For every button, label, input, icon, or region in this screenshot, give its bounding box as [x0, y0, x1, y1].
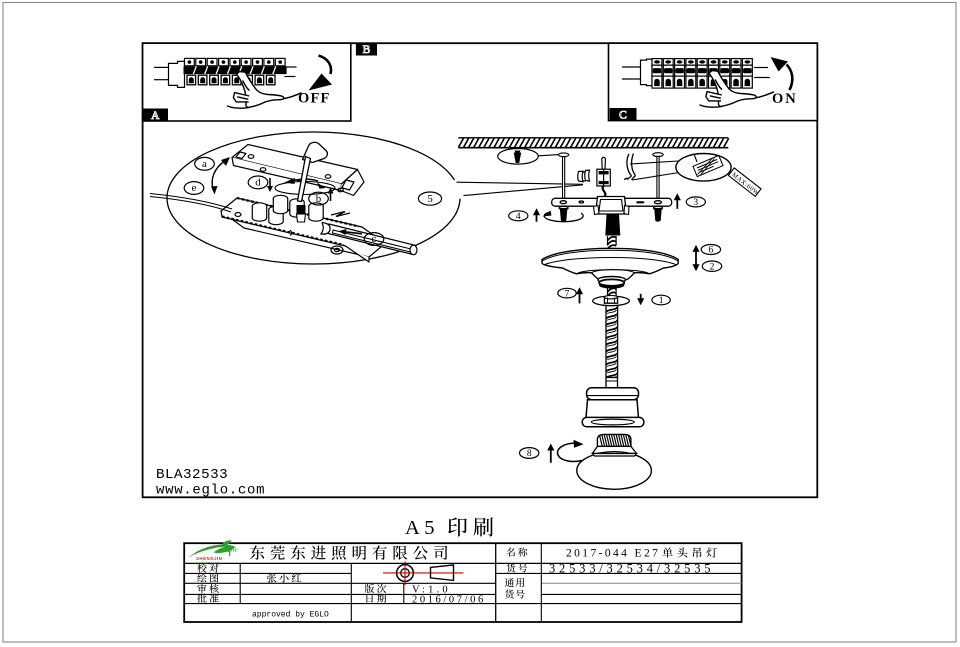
svg-text:8: 8 — [527, 449, 532, 459]
svg-text:b: b — [316, 193, 322, 205]
svg-text:2017-044 E27: 2017-044 E27 — [566, 548, 660, 560]
svg-text:2016/07/06: 2016/07/06 — [412, 595, 486, 606]
svg-text:a: a — [202, 158, 207, 170]
svg-text:approved by EGLO: approved by EGLO — [252, 611, 329, 620]
svg-text:5: 5 — [427, 193, 433, 205]
svg-text:d: d — [255, 177, 261, 189]
svg-text:C: C — [619, 109, 627, 121]
svg-text:A5: A5 — [405, 517, 439, 539]
svg-text:www.eglo.com: www.eglo.com — [156, 483, 265, 499]
svg-text:6: 6 — [709, 246, 714, 256]
svg-text:3: 3 — [693, 198, 698, 208]
svg-text:BLA32533: BLA32533 — [156, 467, 228, 483]
svg-text:c: c — [372, 233, 377, 245]
svg-text:1: 1 — [659, 296, 664, 306]
svg-text:ON: ON — [772, 91, 798, 107]
svg-text:7: 7 — [565, 289, 570, 299]
svg-text:2: 2 — [710, 262, 715, 272]
svg-text:4: 4 — [516, 212, 521, 222]
svg-text:e: e — [192, 182, 197, 194]
svg-text:OFF: OFF — [298, 91, 331, 107]
svg-text:A: A — [151, 110, 160, 122]
svg-text:DW: DW — [227, 547, 239, 554]
svg-text:32533/32534/32535: 32533/32534/32535 — [549, 561, 714, 575]
svg-text:B: B — [363, 44, 371, 56]
